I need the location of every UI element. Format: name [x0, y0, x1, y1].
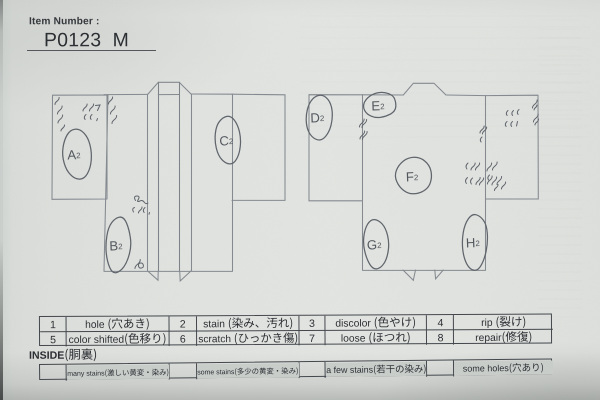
svg-text:F2: F2: [406, 169, 419, 184]
svg-text:G2: G2: [367, 237, 382, 253]
svg-text:A2: A2: [67, 147, 81, 162]
svg-text:B2: B2: [109, 238, 123, 253]
svg-text:H2: H2: [466, 235, 480, 250]
svg-text:D2: D2: [310, 110, 324, 125]
svg-text:C2: C2: [219, 133, 233, 148]
svg-text:E2: E2: [371, 98, 385, 113]
